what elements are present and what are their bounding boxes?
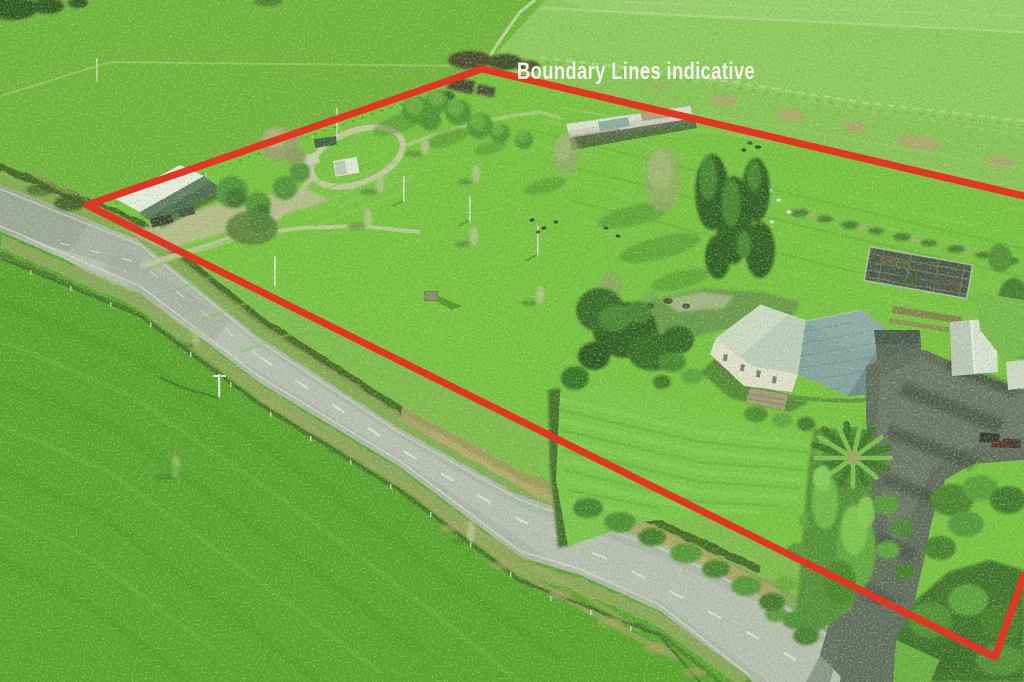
svg-text:Boundary Lines indicative: Boundary Lines indicative — [517, 58, 755, 85]
